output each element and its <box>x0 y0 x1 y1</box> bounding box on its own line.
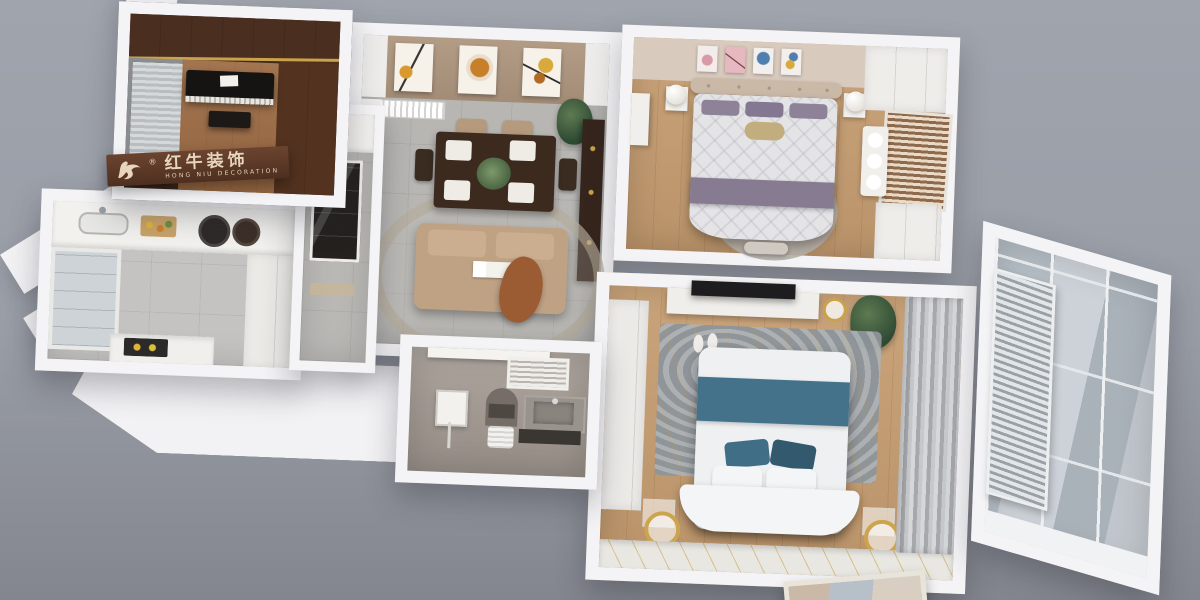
dining-chair-right <box>558 158 577 191</box>
bull-logo-icon <box>114 156 145 183</box>
toilet-cistern <box>488 404 515 419</box>
bathroom <box>395 334 603 490</box>
accent-cushion <box>744 121 785 141</box>
vanity-basin <box>533 401 574 425</box>
wardrobe-top <box>863 46 947 113</box>
curved-headboard <box>678 484 860 537</box>
toilet <box>487 426 514 449</box>
purple-pillow-3 <box>789 103 828 119</box>
sink <box>78 212 129 236</box>
shower-pole <box>447 422 451 448</box>
mini-painting-2 <box>725 46 746 73</box>
mini-painting-4 <box>781 49 802 76</box>
dining-chair-left <box>414 149 433 182</box>
window-blinds <box>878 110 953 213</box>
radiator <box>377 99 446 120</box>
purple-pillow-2 <box>745 101 784 117</box>
place-setting-3 <box>444 180 471 201</box>
mini-painting-3 <box>753 48 774 75</box>
window-seat <box>860 126 889 197</box>
kitchen <box>35 188 308 380</box>
hall-runner <box>310 283 354 297</box>
mini-painting-1 <box>697 45 718 72</box>
wall-column-right <box>583 43 609 106</box>
teal-pillow-left <box>724 438 770 468</box>
ceiling-vent <box>507 356 570 390</box>
render-backdrop: ® 红牛装饰 HONG NIU DECORATION <box>0 0 1200 600</box>
gold-stool <box>822 297 847 322</box>
balcony <box>971 221 1171 595</box>
cabinet-column <box>243 254 293 368</box>
floor-plan: ® 红牛装饰 HONG NIU DECORATION <box>0 0 1200 600</box>
piano-bench <box>208 111 251 129</box>
rain-shower <box>435 390 468 427</box>
cutting-board <box>140 215 177 237</box>
sheet-music <box>220 75 238 87</box>
purple-runner <box>690 177 835 209</box>
wardrobe-bottom <box>874 202 942 260</box>
place-setting-4 <box>508 182 535 203</box>
drying-rack <box>986 268 1056 512</box>
foot-stool <box>744 241 788 255</box>
wardrobe <box>601 299 649 510</box>
place-setting-2 <box>509 140 536 161</box>
wall-column-left <box>362 35 388 98</box>
curtains <box>896 297 964 555</box>
cooktop <box>123 338 168 358</box>
master-bedroom <box>585 272 977 594</box>
piano-room: ® 红牛装饰 HONG NIU DECORATION <box>111 1 352 208</box>
sofa-cushion-left <box>428 229 487 257</box>
painting-1 <box>394 43 434 92</box>
place-setting-1 <box>445 140 472 161</box>
painting-3 <box>522 48 562 97</box>
dresser <box>630 93 650 146</box>
purple-pillow-1 <box>701 100 740 116</box>
vanity-cabinet <box>518 429 580 445</box>
teal-runner <box>696 377 850 427</box>
living-dining-room <box>340 22 623 364</box>
bedroom-1 <box>614 25 961 274</box>
painting-2 <box>458 45 498 94</box>
registered-mark: ® <box>148 157 156 166</box>
